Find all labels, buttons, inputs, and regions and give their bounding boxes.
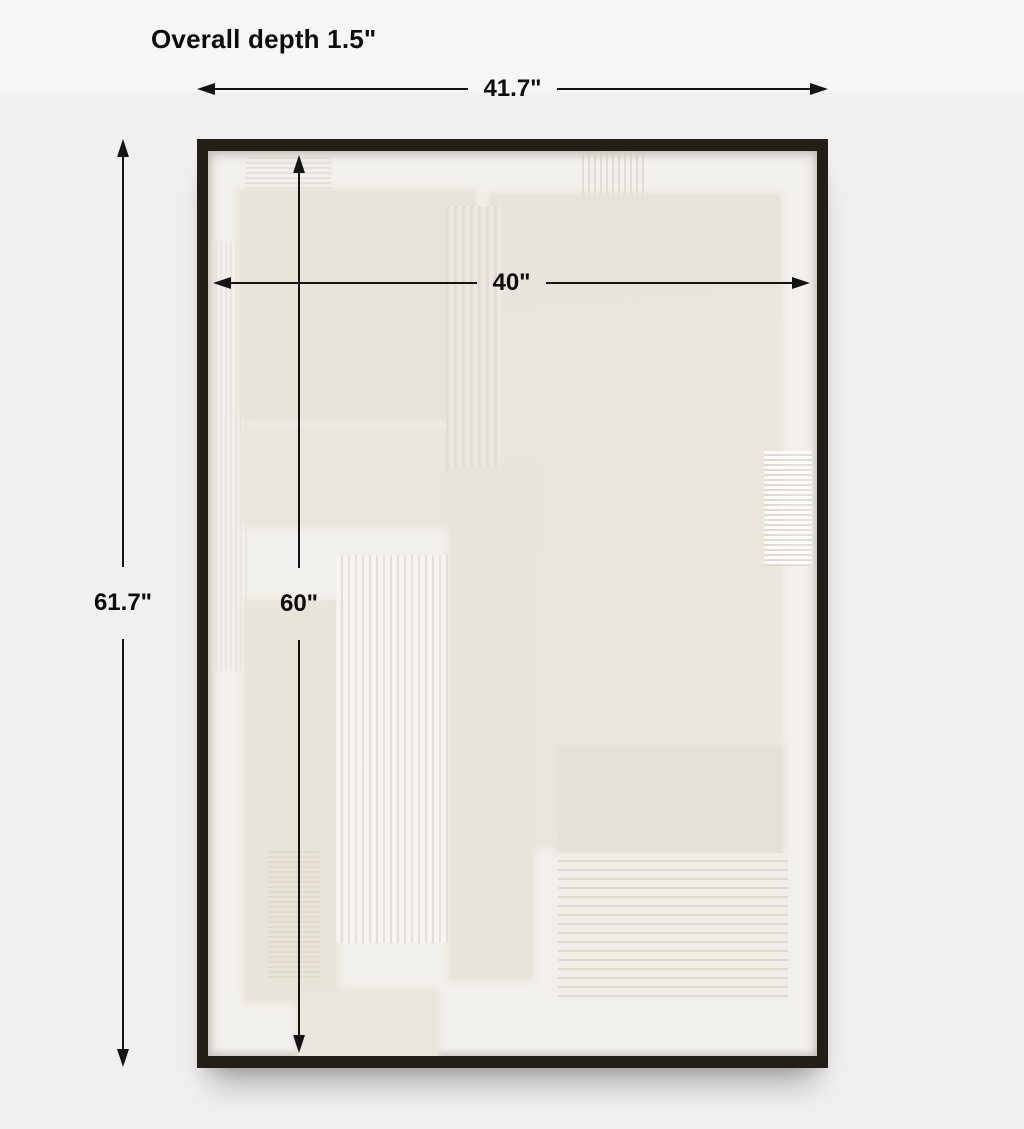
arrowhead-up-icon — [293, 155, 305, 173]
dimension-outer-width: 41.7" — [197, 77, 828, 101]
art-block-top-left — [240, 191, 475, 419]
dimension-label-outer-width: 41.7" — [483, 77, 541, 101]
art-vertical-ridges — [336, 555, 448, 943]
dimension-line — [546, 282, 792, 284]
dimension-line — [557, 88, 810, 90]
art-horizontal-ridges — [558, 853, 788, 999]
dimension-label-inner-width: 40" — [492, 271, 530, 295]
dimension-line — [231, 282, 477, 284]
arrowhead-down-icon — [117, 1049, 129, 1067]
product-dimension-diagram: Overall depth 1.5" 41.7" — [0, 0, 1024, 1129]
dimension-inner-height: 60" — [287, 155, 311, 1053]
arrowhead-right-icon — [810, 83, 828, 95]
arrowhead-down-icon — [293, 1035, 305, 1053]
art-block-bottom-left — [298, 991, 438, 1056]
dimension-line — [122, 157, 124, 567]
arrowhead-right-icon — [792, 277, 810, 289]
dimension-label-inner-height: 60" — [280, 592, 318, 616]
art-strip-center-top — [446, 206, 502, 474]
dimension-label-outer-height: 61.7" — [94, 591, 152, 615]
dimension-line — [215, 88, 468, 90]
art-block-left-mid — [244, 429, 468, 525]
arrowhead-left-icon — [197, 83, 215, 95]
arrowhead-left-icon — [213, 277, 231, 289]
dimension-line — [122, 639, 124, 1049]
dimension-outer-height: 61.7" — [111, 139, 135, 1067]
dimension-line — [298, 640, 300, 1035]
art-strip-center — [450, 469, 532, 979]
arrowhead-up-icon — [117, 139, 129, 157]
art-block-right-bottom — [558, 747, 782, 853]
art-right-edge-ridges — [764, 451, 812, 566]
depth-note: Overall depth 1.5" — [151, 24, 376, 55]
dimension-line — [298, 173, 300, 568]
